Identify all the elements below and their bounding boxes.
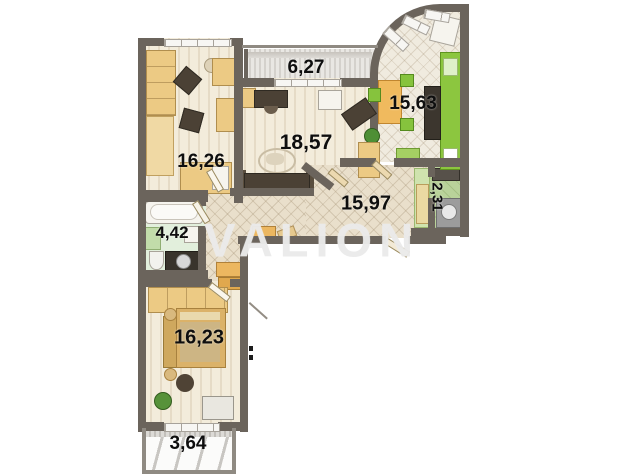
door-hinge-mark xyxy=(249,346,253,351)
area-label-bathroom: 4,42 xyxy=(155,223,188,243)
bathtub-inner xyxy=(150,204,198,220)
wall xyxy=(138,38,146,198)
wall xyxy=(234,38,243,203)
watermark: VALION xyxy=(204,213,420,268)
window-seat xyxy=(318,90,342,110)
area-label-bedroom: 16,23 xyxy=(174,327,224,350)
area-label-room-top-left: 16,26 xyxy=(177,151,225,173)
chair xyxy=(400,118,414,131)
wall xyxy=(232,428,236,474)
washer-door xyxy=(176,254,191,269)
area-label-balcony-bottom: 3,64 xyxy=(170,433,207,455)
area-label-balcony-top: 6,27 xyxy=(288,57,325,79)
area-label-kitchen: 15,63 xyxy=(389,93,437,115)
wall xyxy=(142,428,146,474)
wall xyxy=(340,78,378,87)
cabinet xyxy=(146,116,174,176)
wall xyxy=(138,279,146,432)
wall xyxy=(243,78,274,87)
wall xyxy=(428,165,435,177)
desk xyxy=(202,396,234,420)
bedroom-window xyxy=(164,423,220,432)
wardrobe xyxy=(146,50,176,116)
wall xyxy=(230,188,314,196)
leader-line xyxy=(249,302,268,320)
bed-pillows xyxy=(180,312,220,320)
room-top-left-window xyxy=(164,39,232,47)
nightstand xyxy=(164,368,177,381)
balcony-roof-line xyxy=(242,45,378,48)
door-hinge-mark xyxy=(249,355,253,360)
wall xyxy=(340,158,376,167)
toilet xyxy=(149,251,164,270)
wall-outer-right xyxy=(460,4,469,237)
wall xyxy=(142,470,236,474)
rug-round xyxy=(176,374,194,392)
floor-plan: 6,27 15,63 18,57 16,26 2,31 15,97 4,42 1… xyxy=(0,0,630,475)
balcony-door-window xyxy=(274,79,342,87)
area-label-living-room: 18,57 xyxy=(280,131,333,155)
area-label-storage: 2,31 xyxy=(429,182,446,211)
chair xyxy=(400,74,414,87)
chair xyxy=(368,88,381,102)
plant xyxy=(154,392,172,410)
sink xyxy=(443,58,458,76)
wall xyxy=(138,279,212,287)
